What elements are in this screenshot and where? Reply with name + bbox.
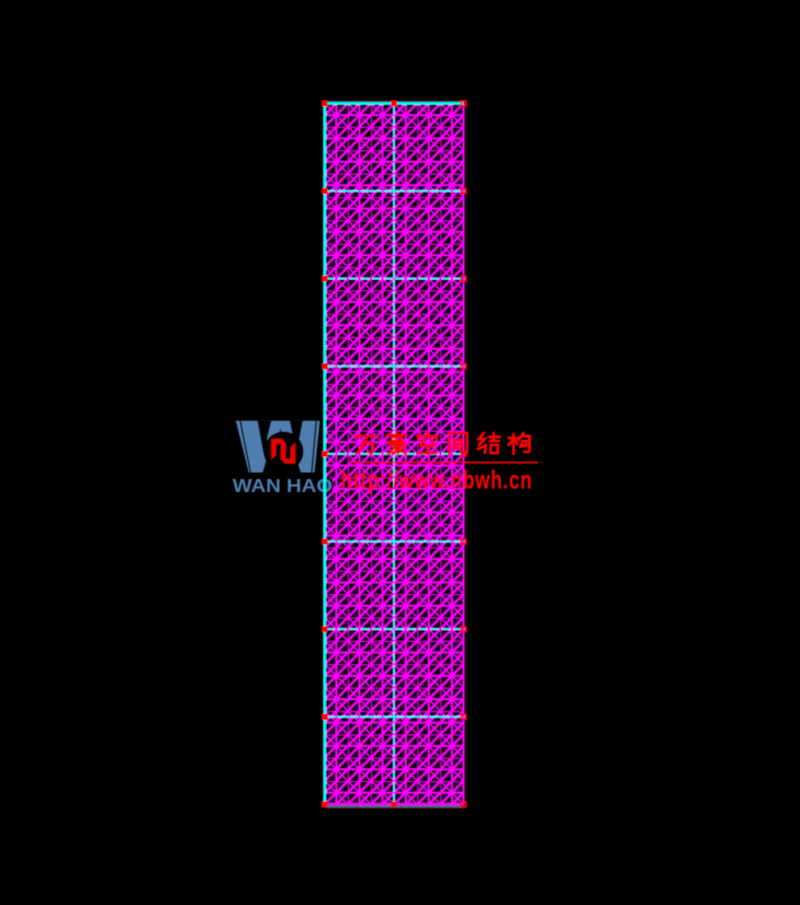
- svg-text:http://www.nbwh.cn: http://www.nbwh.cn: [341, 464, 533, 494]
- svg-text:WAN HAO: WAN HAO: [233, 476, 333, 496]
